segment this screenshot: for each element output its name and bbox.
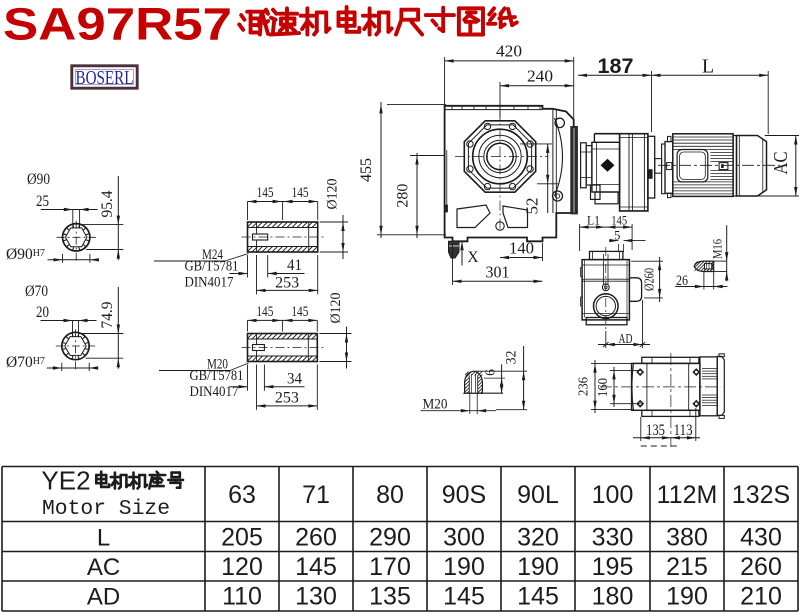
svg-text:280: 280 (395, 184, 412, 208)
svg-text:145: 145 (517, 583, 559, 611)
svg-text:195: 195 (592, 553, 634, 581)
svg-text:AD: AD (87, 584, 120, 611)
svg-text:253: 253 (275, 390, 299, 407)
svg-text:135: 135 (369, 583, 411, 611)
svg-text:SA97R57: SA97R57 (3, 0, 232, 50)
svg-text:260: 260 (295, 524, 337, 552)
svg-text:132S: 132S (732, 481, 790, 509)
svg-text:253: 253 (275, 275, 299, 292)
svg-text:25: 25 (36, 193, 49, 210)
svg-text:Ø260: Ø260 (642, 268, 657, 291)
svg-text:Ø120: Ø120 (328, 293, 344, 324)
svg-text:240: 240 (527, 66, 553, 85)
svg-text:32: 32 (503, 351, 519, 365)
svg-text:145: 145 (611, 212, 627, 227)
svg-text:AC: AC (87, 554, 120, 581)
svg-text:L: L (702, 56, 714, 78)
svg-text:180: 180 (592, 583, 634, 611)
svg-text:Motor Size: Motor Size (42, 498, 170, 521)
svg-text:420: 420 (496, 42, 522, 61)
svg-text:236: 236 (577, 377, 592, 396)
svg-text:34: 34 (287, 371, 302, 388)
svg-text:AC: AC (770, 152, 792, 175)
svg-text:430: 430 (740, 524, 782, 552)
svg-text:290: 290 (369, 524, 411, 552)
svg-text:L: L (97, 525, 110, 552)
svg-text:130: 130 (295, 583, 337, 611)
svg-text:145: 145 (443, 583, 485, 611)
svg-text:113: 113 (674, 422, 693, 439)
svg-text:BOSERL: BOSERL (76, 68, 134, 89)
svg-text:145: 145 (257, 185, 274, 201)
svg-text:41: 41 (287, 257, 302, 274)
svg-text:320: 320 (517, 524, 559, 552)
svg-text:52: 52 (523, 198, 542, 215)
svg-text:YE2: YE2 (41, 466, 90, 496)
svg-text:6: 6 (482, 369, 497, 376)
svg-text:110: 110 (222, 583, 262, 611)
svg-text:Ø70: Ø70 (25, 283, 48, 300)
svg-text:145: 145 (256, 304, 273, 320)
svg-text:380: 380 (666, 524, 708, 552)
svg-text:135: 135 (646, 422, 665, 439)
svg-text:145: 145 (295, 553, 337, 581)
svg-text:GB/T5781: GB/T5781 (190, 368, 244, 384)
svg-text:145: 145 (291, 304, 308, 320)
svg-text:63: 63 (228, 481, 256, 509)
svg-text:112M: 112M (657, 481, 718, 509)
svg-text:330: 330 (592, 524, 634, 552)
svg-text:187: 187 (598, 55, 634, 78)
svg-text:80: 80 (376, 481, 404, 509)
svg-text:26: 26 (676, 273, 688, 289)
svg-text:120: 120 (221, 553, 263, 581)
svg-text:301: 301 (486, 263, 510, 282)
svg-text:190: 190 (666, 583, 708, 611)
svg-text:95.4: 95.4 (99, 190, 116, 217)
svg-text:Ø90: Ø90 (27, 171, 50, 188)
svg-text:145: 145 (292, 185, 309, 201)
svg-text:74.9: 74.9 (99, 301, 116, 328)
svg-text:DIN4017: DIN4017 (185, 275, 234, 291)
svg-text:GB/T5781: GB/T5781 (185, 259, 239, 275)
svg-text:AD: AD (619, 332, 633, 347)
svg-text:160: 160 (596, 378, 611, 397)
svg-text:140: 140 (509, 239, 534, 258)
svg-text:Ø120: Ø120 (325, 179, 341, 210)
svg-text:205: 205 (221, 524, 263, 552)
svg-text:90S: 90S (442, 481, 486, 509)
svg-text:190: 190 (443, 553, 485, 581)
svg-text:71: 71 (302, 481, 330, 509)
svg-text:L1: L1 (587, 212, 600, 227)
svg-text:5: 5 (614, 228, 620, 242)
svg-text:100: 100 (592, 481, 634, 509)
svg-text:M20: M20 (423, 397, 448, 413)
svg-text:300: 300 (443, 524, 485, 552)
svg-text:260: 260 (740, 553, 782, 581)
svg-text:215: 215 (666, 553, 708, 581)
svg-text:455: 455 (358, 158, 375, 182)
svg-text:M16: M16 (710, 239, 724, 259)
svg-text:X: X (467, 249, 478, 266)
svg-text:20: 20 (36, 304, 49, 321)
svg-text:210: 210 (740, 583, 782, 611)
svg-text:190: 190 (517, 553, 559, 581)
svg-text:90L: 90L (517, 481, 559, 509)
svg-text:170: 170 (369, 553, 411, 581)
